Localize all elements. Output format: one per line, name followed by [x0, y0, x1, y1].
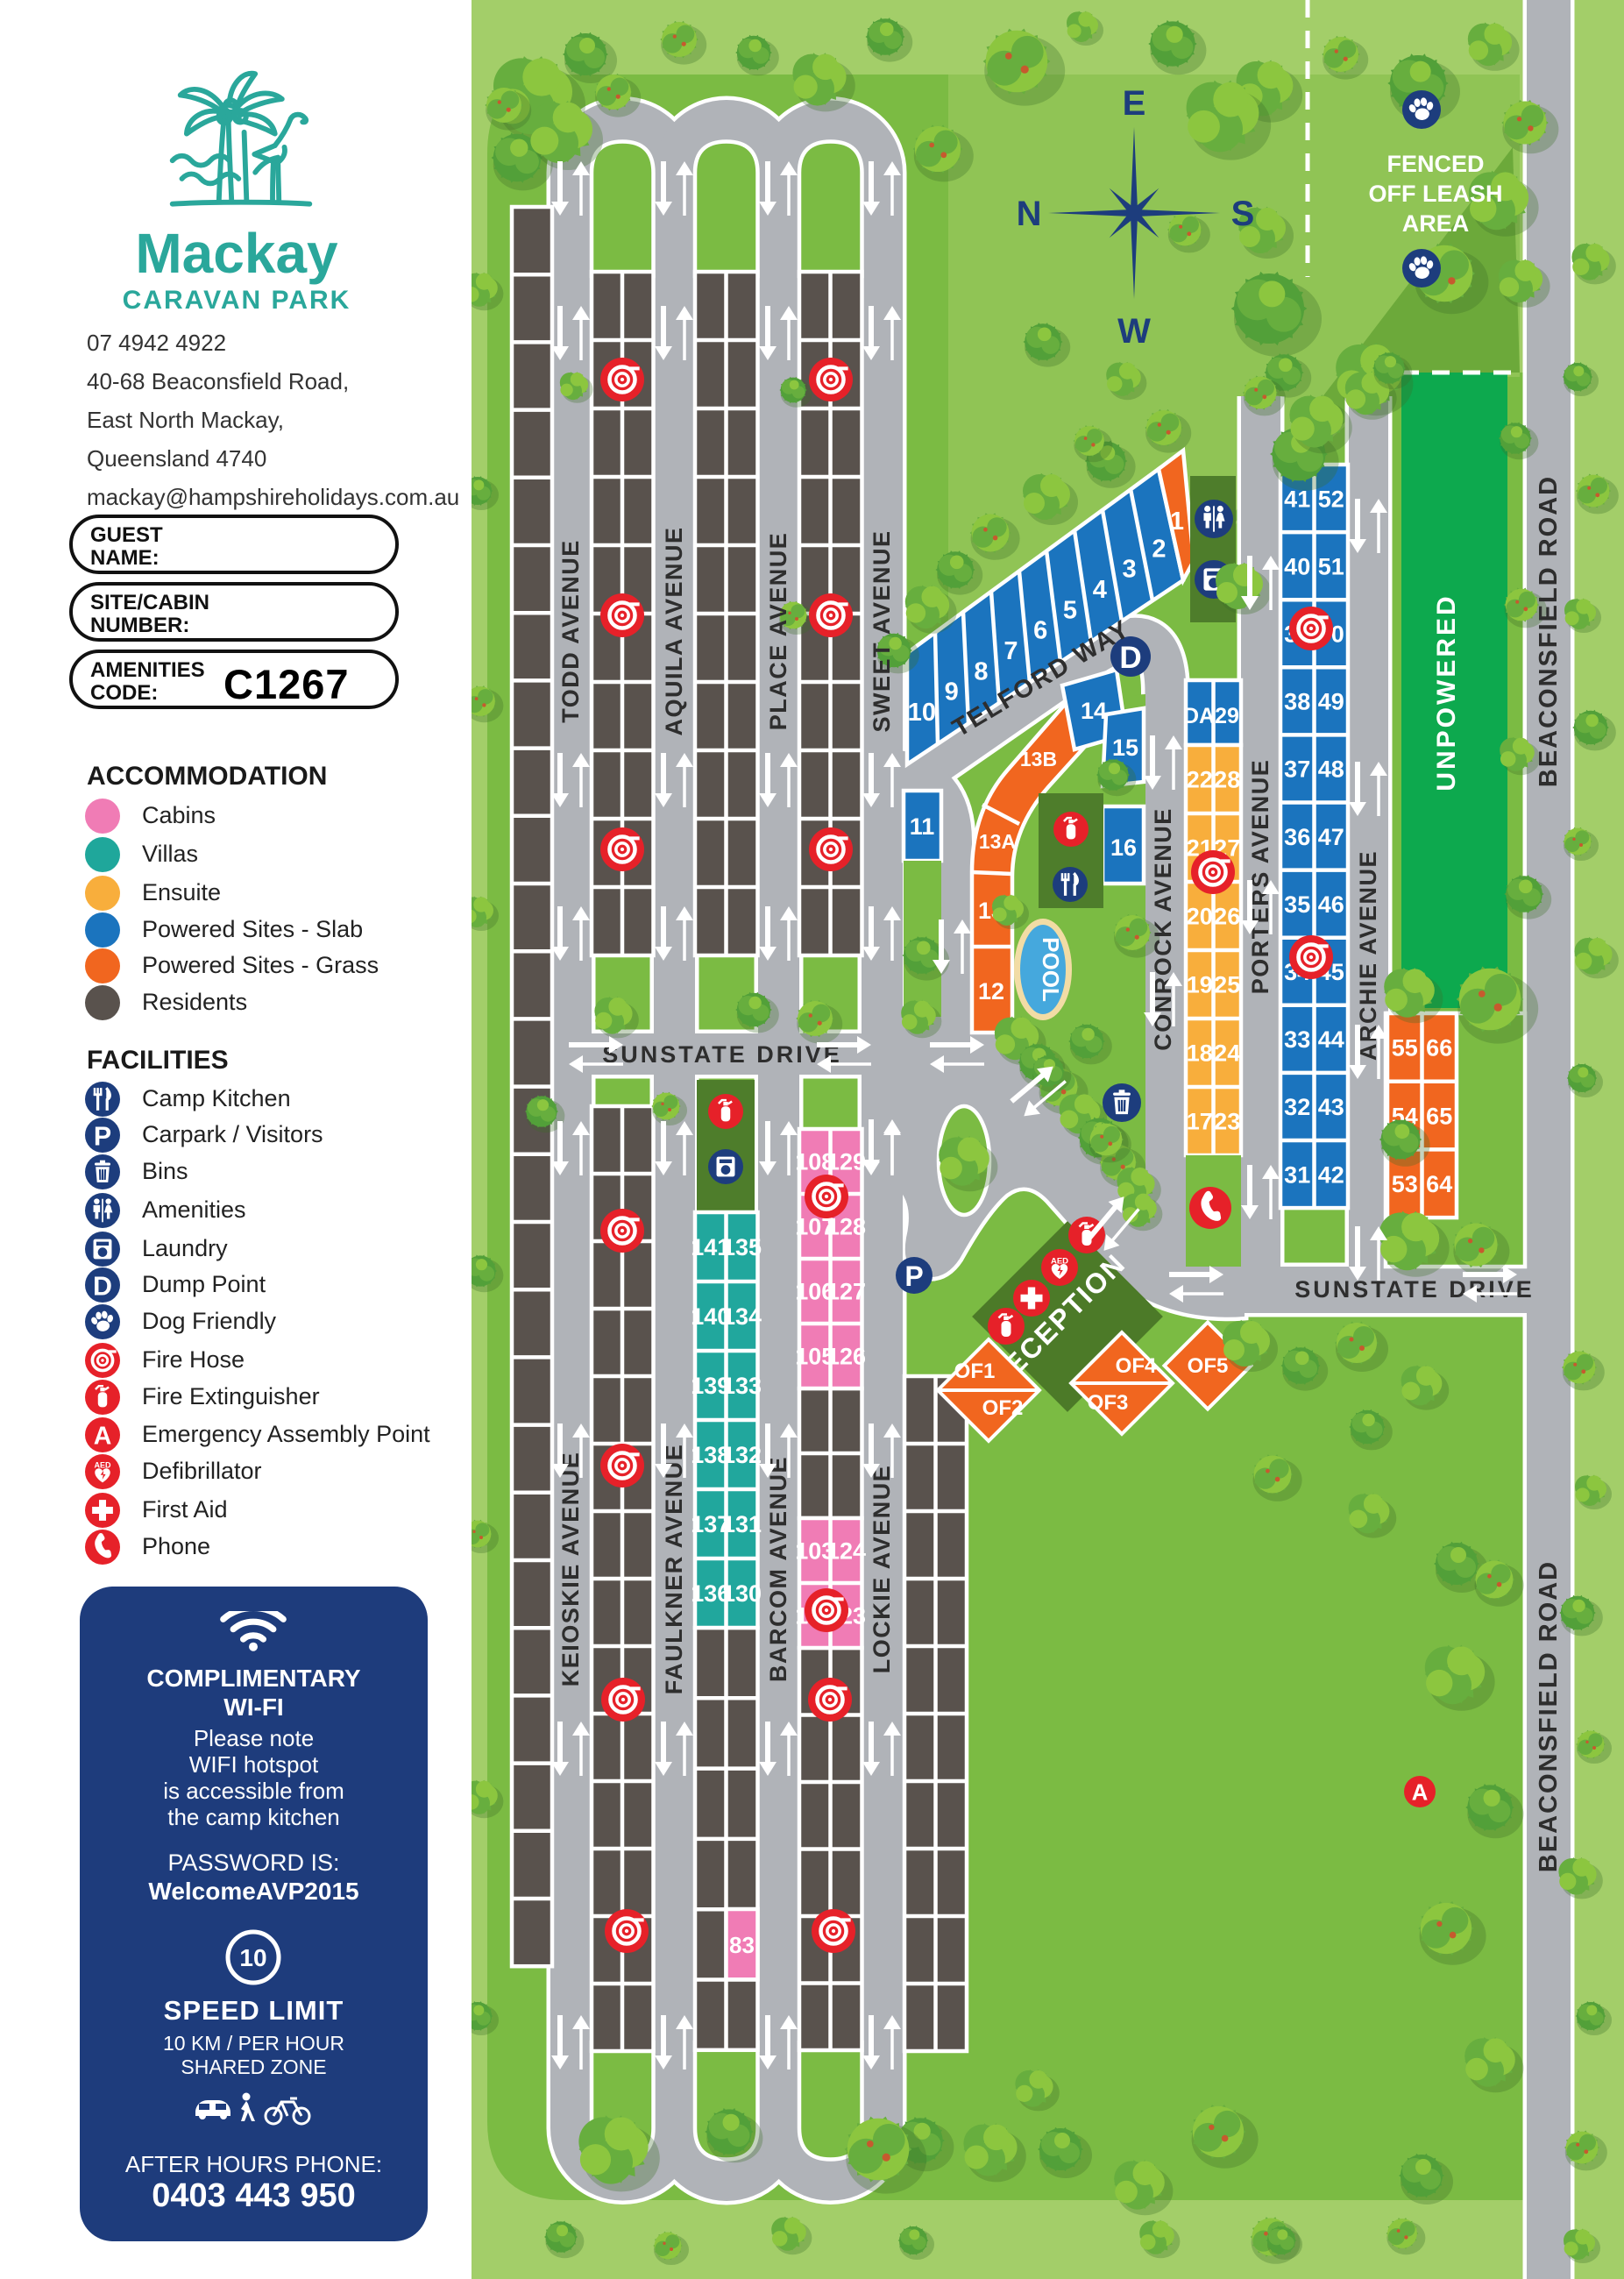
svg-text:OF4: OF4 [1116, 1354, 1157, 1378]
svg-text:49: 49 [1318, 689, 1344, 715]
svg-text:OFF LEASH: OFF LEASH [1369, 181, 1503, 207]
svg-text:1: 1 [1170, 508, 1184, 536]
svg-text:128: 128 [826, 1214, 866, 1240]
svg-text:46: 46 [1318, 891, 1344, 918]
svg-text:DA: DA [1183, 704, 1215, 728]
svg-text:29: 29 [1215, 704, 1239, 728]
svg-text:OF1: OF1 [954, 1360, 996, 1383]
svg-text:AQUILA AVENUE: AQUILA AVENUE [661, 526, 687, 735]
svg-text:UNPOWERED: UNPOWERED [1432, 593, 1461, 791]
svg-text:S: S [1231, 195, 1255, 233]
svg-text:83: 83 [729, 1932, 755, 1958]
svg-text:SWEET AVENUE: SWEET AVENUE [869, 529, 895, 732]
svg-text:OF3: OF3 [1088, 1391, 1129, 1415]
svg-text:23: 23 [1214, 1109, 1240, 1135]
svg-text:14: 14 [1081, 698, 1107, 724]
svg-text:3: 3 [1123, 556, 1137, 584]
svg-text:31: 31 [1284, 1161, 1310, 1188]
svg-text:2: 2 [1152, 535, 1166, 563]
svg-text:FAULKNER AVENUE: FAULKNER AVENUE [661, 1444, 687, 1695]
svg-text:KEIOSKIE AVENUE: KEIOSKIE AVENUE [557, 1452, 584, 1687]
svg-text:53: 53 [1392, 1171, 1418, 1197]
svg-text:47: 47 [1318, 824, 1344, 850]
svg-text:20: 20 [1187, 904, 1213, 930]
svg-text:33: 33 [1284, 1026, 1310, 1053]
svg-text:PORTERS AVENUE: PORTERS AVENUE [1247, 759, 1273, 995]
svg-text:5: 5 [1063, 596, 1077, 624]
svg-text:N: N [1017, 195, 1042, 233]
svg-text:66: 66 [1426, 1035, 1452, 1061]
svg-text:65: 65 [1426, 1103, 1452, 1129]
svg-text:24: 24 [1214, 1040, 1240, 1067]
svg-text:40: 40 [1284, 553, 1310, 579]
svg-text:12: 12 [978, 978, 1004, 1005]
svg-text:35: 35 [1284, 891, 1310, 918]
svg-text:13A: 13A [979, 830, 1016, 853]
svg-text:BARCOM AVENUE: BARCOM AVENUE [765, 1456, 791, 1682]
svg-text:BEACONSFIELD ROAD: BEACONSFIELD ROAD [1535, 475, 1563, 787]
svg-text:AREA: AREA [1402, 210, 1470, 237]
svg-text:64: 64 [1426, 1171, 1452, 1197]
svg-text:LOCKIE AVENUE: LOCKIE AVENUE [869, 1465, 895, 1674]
svg-text:38: 38 [1284, 689, 1310, 715]
svg-text:13B: 13B [1020, 748, 1057, 770]
svg-text:130: 130 [722, 1580, 762, 1607]
svg-text:55: 55 [1392, 1035, 1418, 1061]
svg-text:32: 32 [1284, 1094, 1310, 1120]
svg-text:135: 135 [722, 1234, 762, 1260]
svg-text:W: W [1117, 312, 1151, 351]
svg-text:127: 127 [826, 1279, 866, 1305]
svg-text:OF2: OF2 [982, 1396, 1024, 1420]
svg-text:POOL: POOL [1038, 937, 1064, 1002]
svg-text:10: 10 [908, 699, 936, 727]
svg-text:9: 9 [945, 678, 959, 706]
svg-text:52: 52 [1318, 486, 1344, 512]
svg-text:28: 28 [1214, 767, 1240, 793]
svg-text:132: 132 [722, 1442, 762, 1468]
svg-text:51: 51 [1318, 553, 1344, 579]
svg-text:BEACONSFIELD ROAD: BEACONSFIELD ROAD [1535, 1560, 1563, 1872]
svg-text:25: 25 [1214, 972, 1240, 998]
svg-text:124: 124 [826, 1538, 866, 1565]
svg-text:18: 18 [1187, 1040, 1213, 1067]
svg-text:26: 26 [1214, 904, 1240, 930]
svg-text:SUNSTATE DRIVE: SUNSTATE DRIVE [1294, 1276, 1535, 1303]
svg-text:FENCED: FENCED [1386, 151, 1484, 177]
svg-text:16: 16 [1110, 834, 1137, 861]
svg-text:126: 126 [826, 1344, 866, 1370]
svg-text:134: 134 [722, 1303, 762, 1330]
svg-text:19: 19 [1187, 972, 1213, 998]
svg-text:SUNSTATE DRIVE: SUNSTATE DRIVE [602, 1041, 842, 1068]
svg-text:OF5: OF5 [1188, 1354, 1229, 1378]
svg-text:131: 131 [722, 1511, 762, 1537]
svg-text:E: E [1123, 84, 1146, 123]
svg-text:PLACE AVENUE: PLACE AVENUE [765, 532, 791, 731]
svg-text:11: 11 [910, 813, 935, 840]
svg-text:10: 10 [239, 1944, 266, 1971]
svg-text:43: 43 [1318, 1094, 1344, 1120]
svg-text:TODD AVENUE: TODD AVENUE [557, 539, 584, 723]
svg-text:22: 22 [1187, 767, 1213, 793]
svg-text:17: 17 [1187, 1109, 1213, 1135]
svg-text:44: 44 [1318, 1026, 1344, 1053]
svg-text:133: 133 [722, 1373, 762, 1399]
svg-text:129: 129 [826, 1149, 866, 1175]
svg-text:4: 4 [1093, 576, 1107, 604]
svg-text:42: 42 [1318, 1161, 1344, 1188]
svg-text:36: 36 [1284, 824, 1310, 850]
svg-text:37: 37 [1284, 756, 1310, 783]
svg-text:7: 7 [1003, 637, 1018, 665]
svg-text:6: 6 [1033, 617, 1047, 645]
svg-text:8: 8 [974, 657, 988, 685]
svg-text:48: 48 [1318, 756, 1344, 783]
svg-text:15: 15 [1112, 735, 1138, 761]
